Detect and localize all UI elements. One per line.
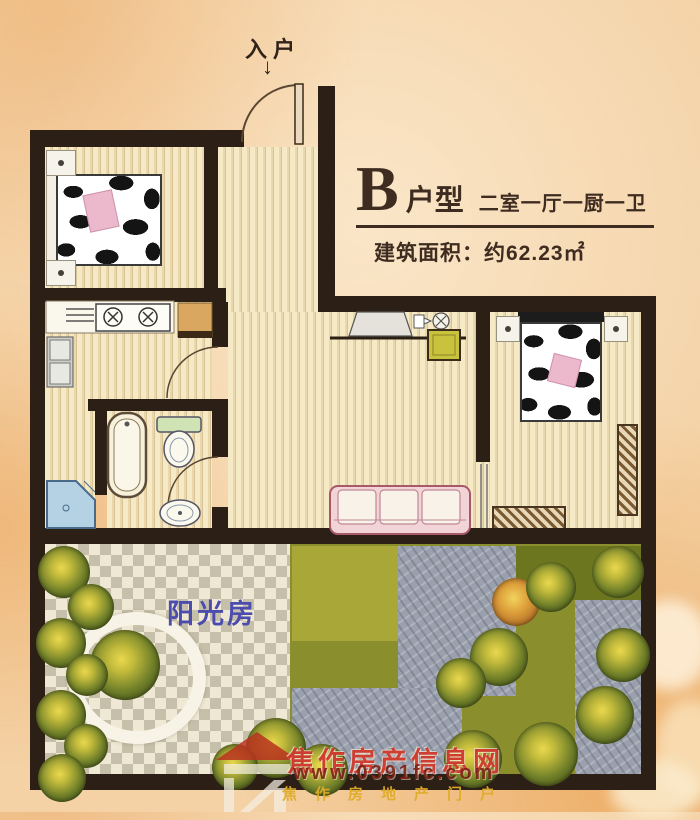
watermark-site-url: www.0391fc.com <box>293 762 495 785</box>
living-room-floor <box>228 312 476 528</box>
radiator <box>617 424 638 516</box>
plan-title: B 户型 二室一厅一厨一卫 建筑面积：约62.23㎡ <box>356 162 654 267</box>
watermark-tagline: 焦作房地产门户 <box>282 783 513 804</box>
wall-left <box>30 130 45 790</box>
area-label: 建筑面积： <box>374 242 484 265</box>
bathroom-floor <box>107 411 212 528</box>
wall-living-left-c <box>212 507 228 530</box>
nightstand <box>604 316 628 342</box>
wall-living-left-a <box>212 302 228 347</box>
kitchen-floor <box>45 302 212 399</box>
wall-bedroom1-right <box>204 145 218 290</box>
type-suffix: 户型 <box>406 177 464 219</box>
tree-icon <box>592 546 644 598</box>
logo-strokes <box>224 764 290 812</box>
entrance-label: 入户 <box>245 32 301 64</box>
logo-roof-icon <box>216 732 298 760</box>
wall-bedroom1-bottom <box>30 288 226 302</box>
tree-icon <box>526 562 576 612</box>
entrance-door <box>242 84 303 144</box>
bedroom2-doorway-floor <box>476 462 490 528</box>
nightstand <box>46 150 76 176</box>
entrance-arrow-icon: ↓ <box>262 54 273 80</box>
tree-icon <box>514 722 578 786</box>
wall-sunroom-top <box>30 528 656 544</box>
tree-icon <box>576 686 634 744</box>
nightstand <box>496 316 520 342</box>
nightstand <box>46 260 76 286</box>
wall-top-right <box>318 296 656 312</box>
wall-bedroom2-left <box>476 312 490 462</box>
tree-icon <box>596 628 650 682</box>
building-area: 建筑面积：约62.23㎡ <box>356 237 654 267</box>
title-underline <box>356 225 654 228</box>
tree-icon <box>66 654 108 696</box>
wall-bathroom-left <box>95 399 107 495</box>
tree-icon <box>436 658 486 708</box>
hallway-floor <box>218 147 318 312</box>
bench <box>492 506 566 530</box>
bedroom2-bed <box>494 308 630 426</box>
area-value: 约62.23㎡ <box>484 242 586 265</box>
bedroom1-bed <box>46 174 162 266</box>
shower-nook-floor <box>45 399 95 528</box>
tree-icon <box>38 754 86 802</box>
wall-entry-vertical <box>318 86 335 312</box>
sunroom-label: 阳光房 <box>167 592 257 631</box>
wall-bathroom-top <box>88 399 228 411</box>
type-letter: B <box>356 162 399 216</box>
layout-description: 二室一厅一厨一卫 <box>479 187 647 216</box>
